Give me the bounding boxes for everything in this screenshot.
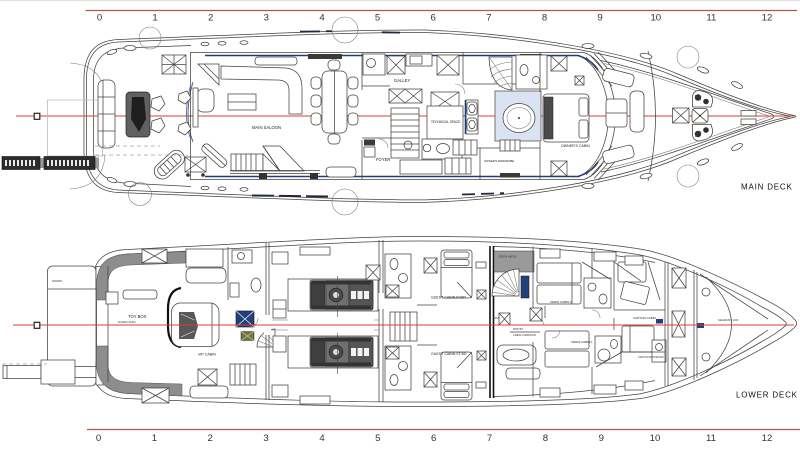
svg-text:5: 5 [375,13,380,24]
svg-text:7: 7 [486,13,491,24]
svg-text:6: 6 [431,13,436,24]
svg-text:11: 11 [706,433,716,444]
svg-text:FOYER: FOYER [376,157,390,162]
svg-text:GUEST CABIN ST.BD: GUEST CABIN ST.BD [431,352,467,356]
svg-text:8: 8 [543,433,548,444]
svg-text:CAPTAIN CABIN: CAPTAIN CABIN [633,316,656,320]
svg-text:CREW CABIN 1: CREW CABIN 1 [571,340,593,344]
svg-text:1: 1 [152,13,157,24]
svg-text:3: 3 [263,433,268,444]
svg-text:4: 4 [319,433,325,444]
svg-text:6: 6 [431,433,436,444]
svg-text:MAIN DECK: MAIN DECK [741,183,793,192]
svg-text:11: 11 [706,13,716,24]
svg-text:2: 2 [208,13,213,24]
svg-text:SEAMAN'S LKR: SEAMAN'S LKR [718,318,738,322]
svg-text:4: 4 [319,13,325,24]
svg-text:OWNER'S WARDROBE: OWNER'S WARDROBE [484,159,514,163]
svg-text:TECHNICAL SPACE: TECHNICAL SPACE [431,120,460,124]
svg-text:9: 9 [597,13,602,24]
svg-text:2: 2 [208,433,213,444]
svg-text:12: 12 [762,13,773,24]
svg-text:TOY BOX: TOY BOX [128,314,147,319]
svg-text:10: 10 [650,433,661,444]
svg-text:7: 7 [487,433,492,444]
svg-text:CREW MESS: CREW MESS [498,255,517,259]
svg-text:GALLEY: GALLEY [394,78,411,83]
svg-text:CREW CORRIDOR: CREW CORRIDOR [513,333,536,337]
svg-text:0: 0 [97,13,102,24]
svg-text:LOWER DECK: LOWER DECK [736,391,798,400]
svg-text:0: 0 [96,433,101,444]
svg-text:GUEST CABIN PORT: GUEST CABIN PORT [431,296,467,300]
svg-text:VIP CABIN: VIP CABIN [198,353,216,357]
svg-text:OWNER'S CABIN: OWNER'S CABIN [561,144,590,148]
svg-text:10: 10 [650,13,661,24]
svg-text:3: 3 [264,13,269,24]
svg-text:DOWN SHIN: DOWN SHIN [118,320,136,324]
svg-text:12: 12 [762,433,773,444]
svg-text:1: 1 [152,433,157,444]
svg-text:CREW CABIN 2: CREW CABIN 2 [550,300,572,304]
svg-text:9: 9 [599,433,604,444]
svg-text:PANTRY: PANTRY [513,327,524,331]
svg-text:8: 8 [542,13,547,24]
svg-text:5: 5 [375,433,380,444]
svg-text:CAPTAIN BATHROOM: CAPTAIN BATHROOM [638,356,664,359]
svg-text:MAIN SALOON: MAIN SALOON [252,125,281,130]
